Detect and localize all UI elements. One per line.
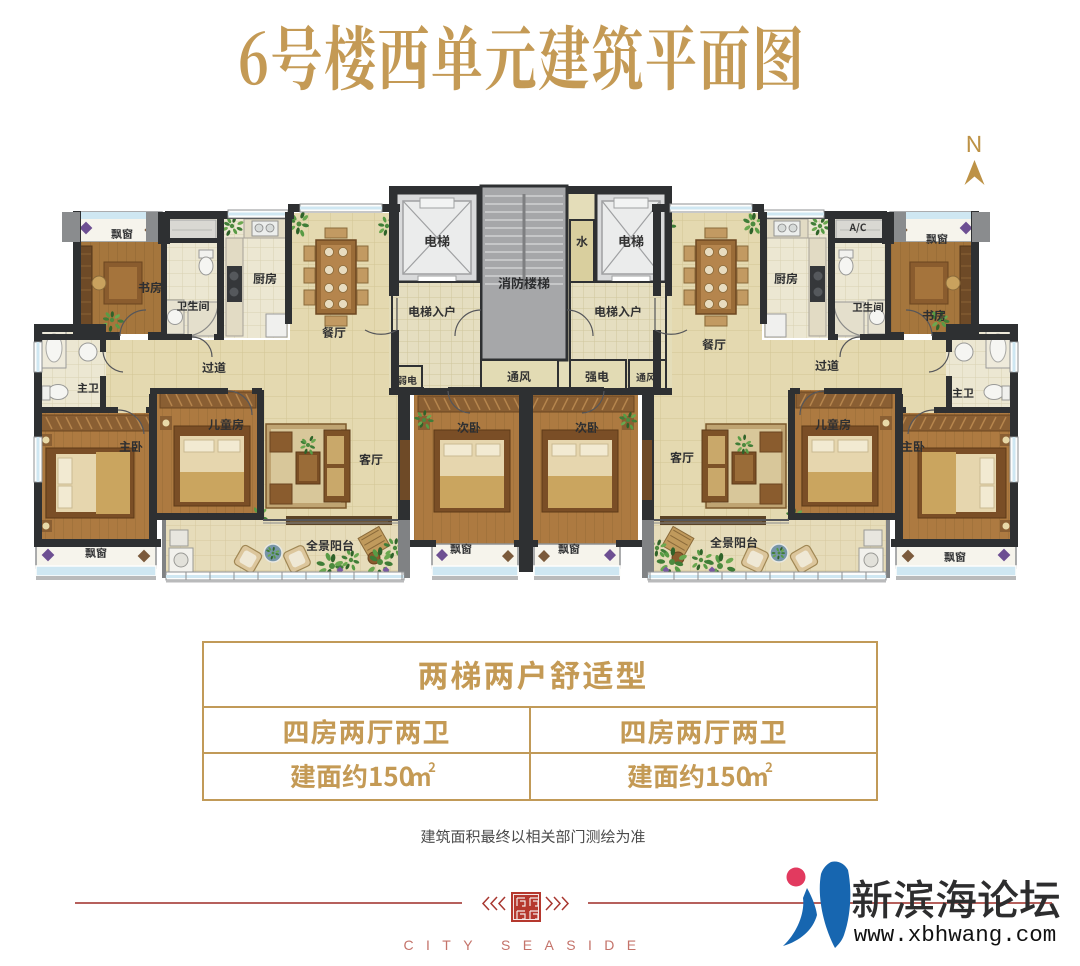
svg-text:CITY SEASIDE: CITY SEASIDE: [403, 937, 648, 953]
svg-text:www.xbhwang.com: www.xbhwang.com: [854, 922, 1057, 948]
